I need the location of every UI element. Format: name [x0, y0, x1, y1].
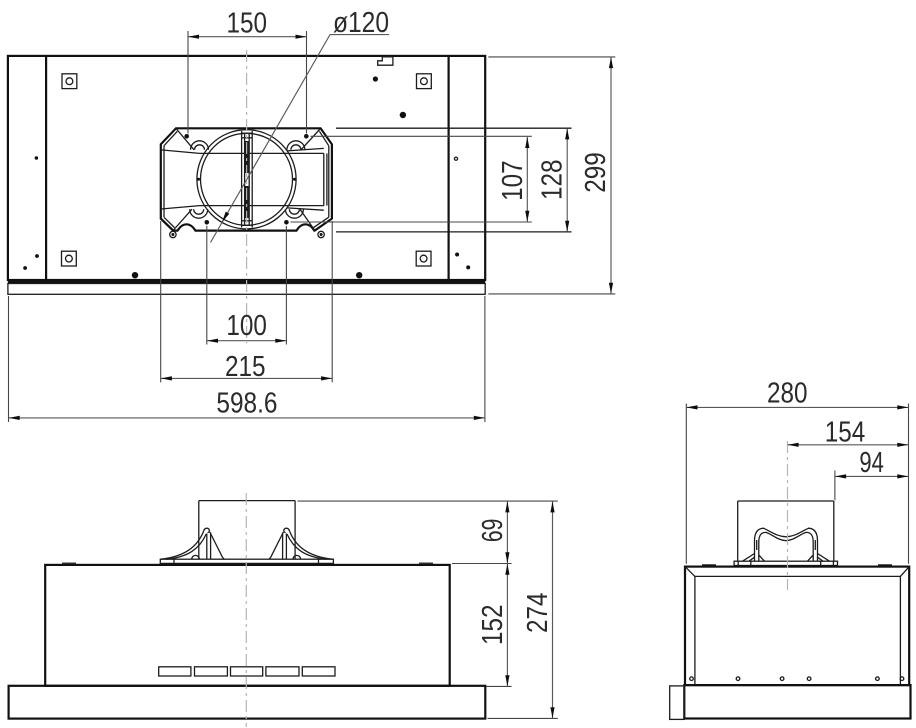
svg-text:299: 299	[580, 152, 612, 193]
svg-text:154: 154	[825, 417, 866, 449]
svg-text:100: 100	[226, 310, 267, 342]
svg-text:274: 274	[522, 593, 554, 634]
svg-text:128: 128	[537, 160, 569, 201]
svg-text:94: 94	[859, 447, 884, 479]
svg-text:ø120: ø120	[333, 7, 389, 39]
svg-text:107: 107	[497, 160, 529, 201]
svg-text:150: 150	[227, 7, 267, 39]
svg-text:280: 280	[767, 377, 808, 409]
svg-text:215: 215	[225, 351, 266, 383]
svg-text:69: 69	[477, 519, 509, 543]
svg-text:152: 152	[477, 604, 509, 645]
svg-text:598.6: 598.6	[216, 388, 277, 420]
